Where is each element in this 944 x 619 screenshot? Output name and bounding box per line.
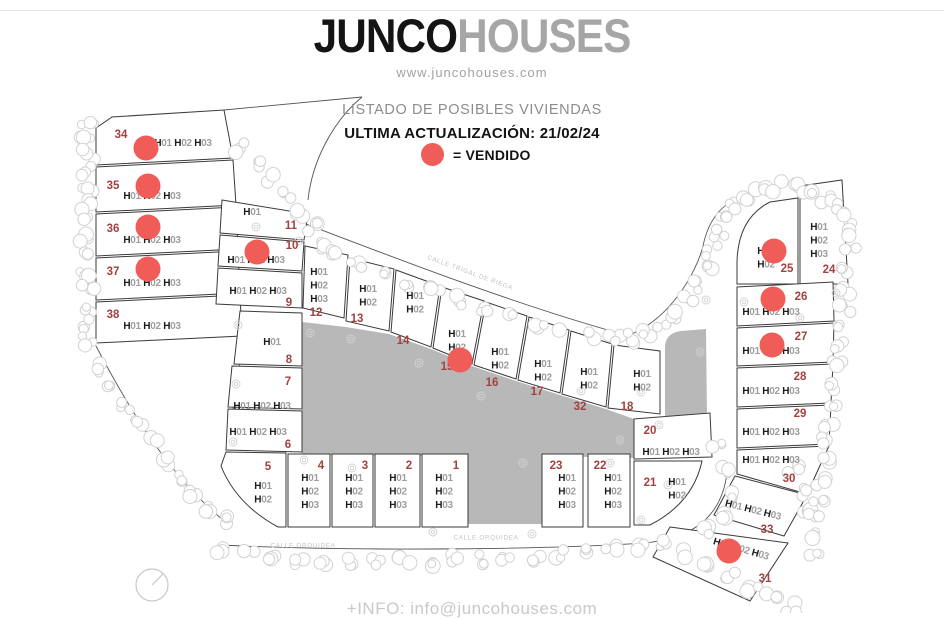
- tree-icon: [830, 358, 844, 372]
- shrub-icon: [702, 296, 710, 304]
- shrub-icon: [431, 530, 435, 534]
- tree-icon: [150, 434, 164, 448]
- tree-icon: [117, 397, 127, 407]
- tree-icon: [356, 262, 366, 272]
- plot-number: 24: [823, 264, 836, 276]
- plot-houses: H01H02H03: [389, 473, 407, 511]
- plot-houses: H01H02H03: [558, 473, 576, 511]
- plot-houses: H01H02H03: [604, 473, 622, 511]
- house-labels: H01 H02 H03: [742, 455, 800, 466]
- plot-number: 1: [453, 460, 460, 472]
- tree-icon: [84, 116, 96, 128]
- tree-icon: [818, 475, 831, 488]
- tree-icon: [740, 584, 755, 599]
- house-labels: H03: [558, 500, 576, 511]
- tree-icon: [371, 560, 381, 570]
- tree-icon: [255, 156, 266, 167]
- plot-number: 7: [285, 376, 291, 388]
- tree-icon: [76, 279, 88, 291]
- tree-icon: [834, 323, 843, 332]
- plot-27: [737, 323, 834, 366]
- tree-icon: [342, 552, 354, 564]
- tree-icon: [720, 231, 729, 240]
- shrub-icon: [704, 298, 708, 302]
- plot-26: [737, 282, 834, 326]
- tree-icon: [840, 244, 851, 255]
- plot-number: 11: [285, 220, 298, 232]
- tree-icon: [84, 314, 94, 324]
- street-label: CALLE ORQUIDEA: [453, 535, 518, 542]
- tree-icon: [266, 168, 280, 182]
- plot-houses: H01H02H03: [435, 473, 453, 511]
- plot-number: 32: [574, 401, 587, 413]
- tree-icon: [539, 321, 548, 330]
- house-labels: H01: [263, 337, 281, 348]
- plot-number: 12: [310, 307, 323, 319]
- tree-icon: [818, 452, 829, 463]
- plots-layer: [96, 110, 848, 601]
- house-labels: H03: [310, 294, 328, 305]
- plot-number: 28: [794, 371, 807, 383]
- tree-icon: [813, 549, 821, 557]
- house-labels: H01 H02 H03: [742, 427, 800, 438]
- sold-marker-plot-26: [761, 287, 786, 312]
- common-area: [665, 329, 707, 416]
- tree-icon: [400, 280, 410, 290]
- tree-icon: [239, 138, 249, 148]
- tree-icon: [581, 544, 590, 553]
- house-labels: H02: [359, 297, 377, 308]
- tree-icon: [482, 305, 493, 316]
- plot-houses: H01 H02 H03: [123, 321, 181, 332]
- plot-number: 20: [644, 425, 657, 437]
- house-labels: H01: [491, 347, 509, 358]
- plot-houses: H01: [263, 337, 281, 348]
- house-labels: H01: [345, 473, 363, 484]
- tree-icon: [657, 534, 669, 546]
- plot-number: 36: [107, 223, 120, 235]
- tree-icon: [161, 451, 174, 464]
- tree-icon: [803, 508, 814, 519]
- tree-icon: [668, 304, 683, 319]
- plot-houses: H01 H02 H03: [229, 286, 287, 297]
- plot-number: 27: [795, 331, 808, 343]
- house-labels: H01: [448, 329, 466, 340]
- house-labels: H01 H02 H03: [229, 286, 287, 297]
- tree-icon: [527, 555, 538, 566]
- plot-houses: H01 H02 H03: [154, 138, 212, 149]
- tree-icon: [105, 381, 114, 390]
- flyer-page: CALLE TRIGAL DE RIEGACALLE ORQUIDEACALLE…: [0, 0, 944, 613]
- plot-number: 16: [486, 377, 499, 389]
- plot-number: 5: [265, 461, 272, 473]
- sold-dot-icon: [421, 143, 444, 166]
- tree-icon: [706, 440, 719, 453]
- plot-houses: H01 H02 H03: [233, 401, 291, 412]
- sold-marker-plot-10: [245, 240, 270, 265]
- tree-icon: [813, 511, 824, 522]
- tree-icon: [222, 513, 231, 522]
- house-labels: H02: [301, 486, 319, 497]
- tree-icon: [424, 282, 438, 296]
- tree-icon: [819, 422, 831, 434]
- plot-number: 22: [594, 460, 607, 472]
- shrub-icon: [530, 532, 534, 536]
- sold-marker-plot-36: [136, 215, 161, 240]
- tree-icon: [428, 560, 436, 568]
- house-labels: H01 H02 H03: [642, 447, 700, 458]
- shrub-icon: [429, 528, 437, 536]
- house-labels: H02: [435, 486, 453, 497]
- tree-icon: [380, 270, 388, 278]
- plot-number: 33: [761, 524, 774, 536]
- tree-icon: [508, 310, 517, 319]
- street-label: CALLE ORQUIDEA: [270, 543, 335, 550]
- house-labels: H02: [491, 360, 509, 371]
- house-labels: H01: [406, 291, 424, 302]
- plot-number: 10: [286, 240, 299, 252]
- tree-icon: [678, 550, 693, 565]
- tree-icon: [505, 553, 514, 562]
- tree-icon: [403, 556, 417, 570]
- tree-icon: [76, 169, 88, 181]
- house-labels: H01: [359, 284, 377, 295]
- tree-icon: [81, 182, 94, 195]
- tree-icon: [584, 327, 594, 337]
- tree-icon: [703, 261, 712, 270]
- tree-icon: [837, 265, 846, 274]
- tree-icon: [314, 557, 326, 569]
- sold-marker-plot-37: [136, 257, 161, 282]
- footer-contact: +INFO: info@juncohouses.com: [0, 599, 944, 619]
- house-labels: H02: [310, 280, 328, 291]
- house-labels: H02: [534, 372, 552, 383]
- plot-number: 30: [783, 473, 796, 485]
- plot-number: 17: [531, 386, 544, 398]
- tree-icon: [82, 248, 93, 259]
- tree-icon: [82, 303, 90, 311]
- house-labels: H01 H02 H03: [233, 401, 291, 412]
- plot-18: [608, 345, 660, 414]
- tree-icon: [263, 554, 274, 565]
- plot-houses: H01 H02 H03: [229, 427, 287, 438]
- sold-legend: = VENDIDO: [421, 143, 531, 166]
- house-labels: H01: [668, 477, 686, 488]
- plot-number: 23: [550, 460, 563, 472]
- plot-number: 31: [759, 573, 772, 585]
- house-labels: H02: [810, 235, 828, 246]
- tree-icon: [177, 476, 187, 486]
- house-labels: H03: [810, 249, 828, 260]
- site-plan-map: CALLE TRIGAL DE RIEGACALLE ORQUIDEACALLE…: [0, 0, 944, 613]
- plot-number: 35: [107, 180, 120, 192]
- plot-number: 34: [115, 129, 128, 141]
- tree-icon: [290, 554, 301, 565]
- house-labels: H01: [810, 222, 828, 233]
- house-labels: H03: [345, 500, 363, 511]
- sold-legend-label: = VENDIDO: [453, 147, 531, 163]
- tree-icon: [631, 543, 645, 557]
- tree-icon: [830, 345, 839, 354]
- tree-icon: [199, 505, 212, 518]
- plot-houses: H01H02H03: [301, 473, 319, 511]
- tree-icon: [688, 275, 700, 287]
- house-labels: H01: [558, 473, 576, 484]
- tree-icon: [73, 234, 87, 248]
- tree-icon: [451, 552, 463, 564]
- plot-houses: H01: [243, 207, 261, 218]
- tree-icon: [842, 228, 856, 242]
- tree-icon: [687, 295, 699, 307]
- tree-icon: [210, 546, 224, 560]
- plot-number: 25: [781, 263, 794, 275]
- house-labels: H01: [604, 473, 622, 484]
- compass-icon: [136, 569, 168, 601]
- house-labels: H02: [254, 494, 272, 505]
- plot-number: 6: [285, 439, 291, 451]
- tree-icon: [558, 545, 568, 555]
- tree-icon: [801, 485, 812, 496]
- tree-icon: [303, 226, 314, 237]
- tree-icon: [832, 298, 846, 312]
- tree-icon: [702, 252, 711, 261]
- tree-icon: [290, 203, 304, 217]
- tree-icon: [611, 336, 621, 346]
- tree-icon: [328, 246, 341, 259]
- house-labels: H01 H02 H03: [229, 427, 287, 438]
- house-labels: H02: [406, 304, 424, 315]
- tree-icon: [704, 529, 713, 538]
- tree-icon: [807, 189, 816, 198]
- tree-icon: [78, 213, 90, 225]
- tree-icon: [312, 218, 322, 228]
- tree-icon: [92, 363, 103, 374]
- tree-icon: [183, 490, 197, 504]
- tree-icon: [457, 301, 466, 310]
- house-labels: H03: [435, 500, 453, 511]
- plot-number: 2: [406, 460, 412, 472]
- house-labels: H03: [301, 500, 319, 511]
- sold-marker-plot-25: [762, 239, 787, 264]
- plot-number: 8: [286, 354, 293, 366]
- tree-icon: [653, 322, 663, 332]
- tree-icon: [286, 193, 296, 203]
- house-labels: H03: [604, 500, 622, 511]
- house-labels: H02: [604, 486, 622, 497]
- house-labels: H01: [633, 369, 651, 380]
- tree-icon: [480, 560, 489, 569]
- plot-number: 4: [318, 460, 325, 472]
- plot-number: 38: [107, 309, 120, 321]
- house-labels: H01 H02 H03: [742, 386, 800, 397]
- plot-houses: H01 H02 H03: [642, 447, 700, 458]
- house-labels: H02: [580, 380, 598, 391]
- tree-icon: [729, 567, 740, 578]
- tree-icon: [475, 550, 484, 559]
- tree-icon: [713, 241, 722, 250]
- tree-icon: [76, 143, 89, 156]
- tree-icon: [837, 208, 851, 222]
- plot-houses: H01 H02 H03: [742, 386, 800, 397]
- sold-marker-plot-31: [717, 539, 742, 564]
- plot-houses: H01 H02 H03: [742, 455, 800, 466]
- house-labels: H02: [558, 486, 576, 497]
- tree-icon: [639, 330, 648, 339]
- tree-icon: [76, 130, 90, 144]
- tree-icon: [834, 284, 846, 296]
- tree-icon: [79, 339, 92, 352]
- tree-icon: [237, 545, 250, 558]
- house-labels: H02: [633, 382, 651, 393]
- house-labels: H02: [389, 486, 407, 497]
- plot-houses: H01H02H03: [810, 222, 828, 260]
- house-labels: H02: [668, 490, 686, 501]
- plot-number: 29: [794, 408, 807, 420]
- tree-icon: [729, 203, 741, 215]
- plot-houses: H01H02H03: [345, 473, 363, 511]
- tree-icon: [766, 185, 780, 199]
- plot-number: 18: [621, 401, 634, 413]
- sold-marker-plot-34: [134, 136, 159, 161]
- house-labels: H02: [345, 486, 363, 497]
- plot-number: 9: [286, 297, 292, 309]
- tree-icon: [819, 495, 828, 504]
- plot-number: 13: [351, 313, 364, 325]
- house-labels: H01: [243, 207, 261, 218]
- plot-houses: H01H02H03: [310, 267, 328, 305]
- plot-number: 37: [107, 266, 120, 278]
- sold-marker-plot-27: [760, 333, 785, 358]
- house-labels: H01: [310, 267, 328, 278]
- tree-icon: [229, 145, 243, 159]
- plot-number: 3: [362, 460, 368, 472]
- tree-icon: [552, 323, 566, 337]
- plot-houses: H01 H02 H03: [742, 427, 800, 438]
- sold-marker-plot-15: [448, 348, 473, 373]
- tree-icon: [125, 405, 134, 414]
- tree-icon: [845, 306, 856, 317]
- house-labels: H03: [389, 500, 407, 511]
- sold-marker-plot-35: [136, 174, 161, 199]
- tree-icon: [818, 438, 829, 449]
- house-labels: H01: [389, 473, 407, 484]
- tree-icon: [601, 544, 611, 554]
- plot-number: 14: [397, 335, 410, 347]
- tree-icon: [829, 402, 837, 410]
- tree-icon: [623, 328, 632, 337]
- tree-icon: [851, 243, 861, 253]
- tree-icon: [722, 463, 736, 477]
- site-plan-svg: CALLE TRIGAL DE RIEGACALLE ORQUIDEACALLE…: [0, 0, 944, 613]
- tree-icon: [825, 382, 834, 391]
- house-labels: H01 H02 H03: [154, 138, 212, 149]
- plot-number: 26: [795, 291, 808, 303]
- tree-icon: [716, 511, 729, 524]
- house-labels: H01: [534, 359, 552, 370]
- house-labels: H01: [435, 473, 453, 484]
- tree-icon: [697, 557, 711, 571]
- house-labels: H01 H02 H03: [123, 321, 181, 332]
- tree-icon: [132, 417, 143, 428]
- tree-icon: [809, 497, 818, 506]
- tree-icon: [805, 531, 820, 546]
- plot-number: 21: [644, 477, 657, 489]
- house-labels: H01: [254, 481, 272, 492]
- shrub-icon: [528, 530, 536, 538]
- house-labels: H01: [580, 367, 598, 378]
- tree-icon: [347, 258, 356, 267]
- tree-icon: [610, 543, 624, 557]
- house-labels: H01: [301, 473, 319, 484]
- tree-icon: [87, 282, 100, 295]
